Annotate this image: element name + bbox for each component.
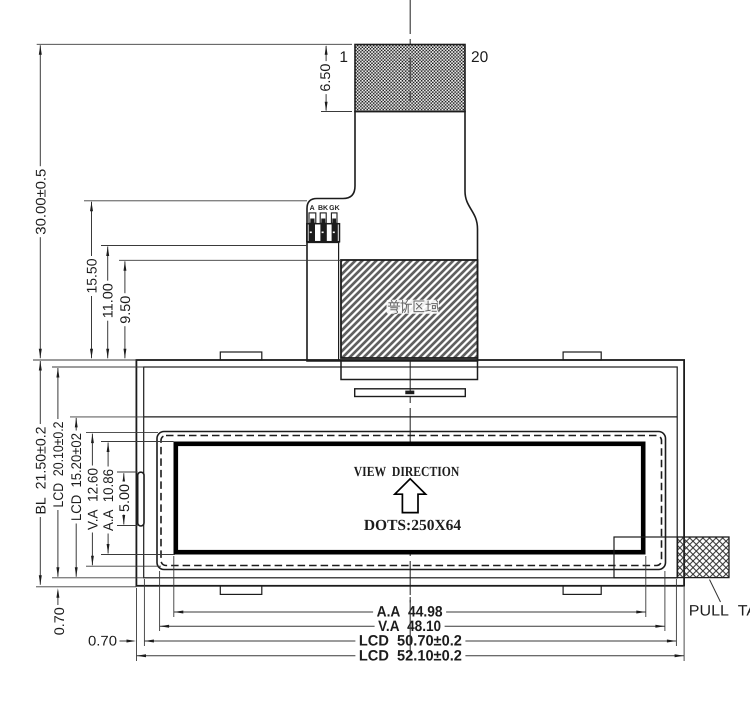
svg-text:LCD 20.10±0.2: LCD 20.10±0.2	[50, 421, 66, 507]
svg-text:5.00: 5.00	[116, 484, 132, 512]
svg-text:30.00±0.5: 30.00±0.5	[32, 168, 48, 234]
svg-text:GK: GK	[329, 205, 340, 212]
svg-text:PULL TAB: PULL TAB	[689, 602, 750, 619]
svg-text:VIEW DIRECTION: VIEW DIRECTION	[354, 465, 460, 480]
svg-text:0.70: 0.70	[88, 633, 117, 649]
svg-text:6.50: 6.50	[317, 63, 333, 91]
svg-text:A: A	[310, 205, 315, 212]
svg-text:BK: BK	[318, 205, 328, 212]
svg-text:0.70: 0.70	[51, 607, 67, 635]
svg-text:9.50: 9.50	[117, 295, 133, 323]
svg-text:15.50: 15.50	[84, 258, 100, 293]
svg-text:20: 20	[471, 49, 489, 66]
svg-text:LCD 15.20±02: LCD 15.20±02	[68, 433, 84, 521]
svg-text:A.A 10.86: A.A 10.86	[100, 469, 116, 531]
svg-text:11.00: 11.00	[100, 283, 116, 318]
svg-text:V.A 12.60: V.A 12.60	[84, 468, 100, 530]
svg-text:BL 21.50±0.2: BL 21.50±0.2	[32, 426, 48, 514]
svg-text:DOTS:250X64: DOTS:250X64	[364, 517, 462, 534]
svg-text:1: 1	[339, 49, 348, 66]
